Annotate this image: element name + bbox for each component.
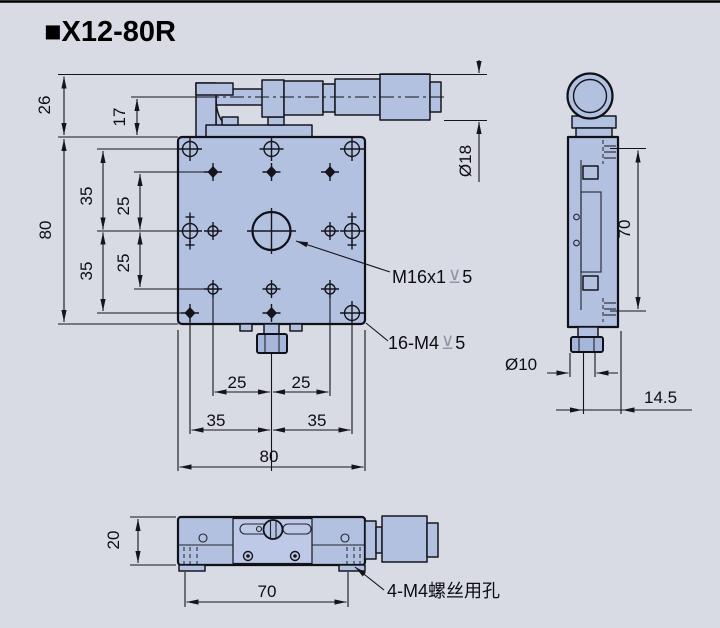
dim-26: 26 xyxy=(35,96,54,115)
dim-80-left: 80 xyxy=(36,221,55,240)
dim-17: 17 xyxy=(110,108,129,127)
micrometer-barrel xyxy=(284,81,323,115)
dim-70-side: 70 xyxy=(615,220,634,239)
label-center-thread: M16x1⊻5 xyxy=(392,267,472,287)
label-screw-holes: 4-M4螺丝用孔 xyxy=(387,581,500,601)
drawing-page: ■X12-80R xyxy=(0,0,720,628)
front-micrometer xyxy=(196,74,448,137)
side-foot-knob xyxy=(571,337,603,352)
leader-grid-holes xyxy=(366,323,388,341)
side-thimble-circle xyxy=(568,74,613,119)
page-title: ■X12-80R xyxy=(44,16,176,48)
dim-35-upper: 35 xyxy=(77,187,96,206)
side-clamp-bottom xyxy=(583,276,598,290)
dim-14-5: 14.5 xyxy=(644,388,677,407)
dim-25-lower: 25 xyxy=(114,254,133,273)
leader-screw-holes xyxy=(355,567,384,590)
front-adjuster-knob xyxy=(257,334,287,353)
bottom-foot-right xyxy=(339,565,365,571)
dim-20: 20 xyxy=(104,531,123,550)
bottom-center-screw xyxy=(264,520,283,539)
bottom-foot-left xyxy=(179,565,205,571)
dim-35-bottom-right: 35 xyxy=(308,411,327,430)
micrometer-bracket-top xyxy=(196,83,233,95)
dim-25-bottom-left: 25 xyxy=(228,373,247,392)
side-view: 70 Ø10 14.5 xyxy=(505,74,692,415)
dim-35-bottom-left: 35 xyxy=(207,411,226,430)
front-plate xyxy=(178,137,365,353)
dim-dia18: Ø18 xyxy=(456,145,475,177)
dim-35-lower: 35 xyxy=(77,262,96,281)
dim-25-upper: 25 xyxy=(114,197,133,216)
side-body xyxy=(568,74,619,353)
bottom-view: 20 70 4-M4螺丝用孔 xyxy=(104,516,500,607)
dim-25-bottom-right: 25 xyxy=(292,373,311,392)
micrometer-locknut xyxy=(262,80,284,117)
bottom-body xyxy=(178,516,438,571)
technical-drawing: ■X12-80R xyxy=(0,0,720,628)
dim-70-bottom: 70 xyxy=(258,582,277,601)
bottom-micrometer xyxy=(365,516,438,562)
dim-80-bottom: 80 xyxy=(260,447,279,466)
side-clamp-top xyxy=(583,166,598,179)
micrometer-bracket-base xyxy=(206,125,312,137)
label-grid-holes: 16-M4⊻5 xyxy=(388,333,465,353)
dim-dia10: Ø10 xyxy=(505,355,537,374)
front-view: 26 17 80 35 25 25 35 Ø18 25 25 35 35 80 … xyxy=(35,60,487,471)
